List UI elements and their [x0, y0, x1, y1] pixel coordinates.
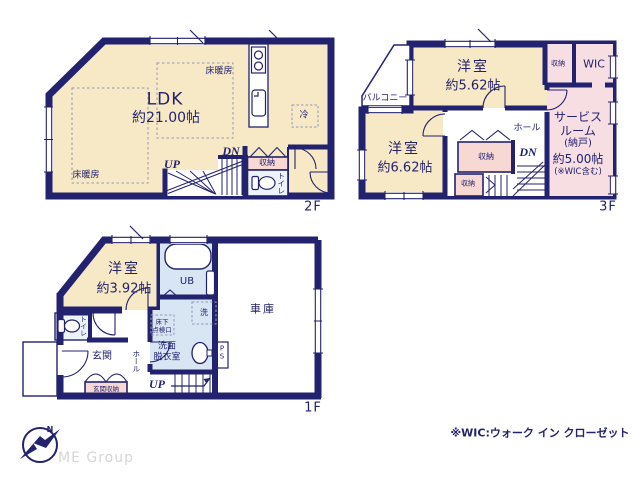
service-room-label: ルーム [560, 125, 596, 137]
floor-heating-label: 床暖房 [72, 172, 99, 181]
stairs-down-label: DN [222, 145, 239, 157]
floor-label-2f: 2F [304, 201, 322, 214]
door-gap [122, 310, 148, 317]
toilet-label: トイレ [277, 172, 285, 195]
storage-label: 収納 [259, 159, 275, 167]
bath-counter-icon [207, 271, 215, 295]
room-label-ldk: LDK [147, 92, 184, 109]
washroom-label: 脱衣室 [153, 354, 180, 363]
toilet-tank-icon [58, 320, 65, 333]
fridge-label: 冷 [299, 112, 308, 121]
room-label-yoshitsu-562: 洋室 [457, 60, 489, 74]
room-size-yoshitsu-392: 約3.92帖 [97, 283, 152, 296]
toilet-bowl-icon [259, 177, 275, 190]
storage-label: 収納 [478, 153, 494, 161]
underfloor-hatch-label: 点検口 [152, 327, 172, 334]
compass-north-label: N [47, 426, 54, 434]
toilet-bowl-icon [65, 320, 80, 332]
washbasin-icon [192, 343, 208, 364]
garage-area [215, 240, 320, 398]
stairs-down-label: DN [519, 146, 536, 158]
unit-bath-label: UB [180, 277, 194, 287]
floor-plan-page: LDK 約21.00帖 床暖房 床暖房 冷 UP DN 収納 トイレ 2F バル… [0, 0, 640, 480]
storage-label: 収納 [461, 181, 475, 188]
kitchen-sink-icon [252, 90, 266, 116]
stairs-up-label: UP [164, 158, 180, 170]
floor-1f-geometry [23, 226, 323, 398]
room-label-yoshitsu-662: 洋室 [388, 142, 420, 156]
underfloor-hatch-label: 床下 [156, 319, 169, 326]
service-room-size: 約5.00帖 [553, 153, 604, 165]
balcony-label: バルコニー [363, 95, 408, 104]
garage-label: 車庫 [250, 304, 276, 315]
room-label-yoshitsu-392: 洋室 [108, 262, 140, 276]
logo-text: ME Group [58, 451, 134, 465]
wic-footnote: ※WIC:ウォーク イン クローゼット [450, 428, 629, 439]
service-room-sublabel: (納戸) [564, 139, 592, 149]
washer-label: 洗 [200, 309, 208, 317]
toilet-tank-icon [252, 177, 259, 190]
room-size-yoshitsu-662: 約6.62帖 [378, 162, 433, 175]
stairs-up-label: UP [149, 378, 165, 390]
pipe-space-label: S [220, 354, 224, 361]
wic-label: WIC [583, 59, 605, 70]
floor-label-3f: 3F [599, 201, 617, 214]
hall-label: ホール [132, 350, 140, 373]
compass-logo-icon [20, 428, 60, 462]
room-size-ldk: 約21.00帖 [132, 111, 200, 125]
f1-stair-treads [175, 372, 210, 395]
pipe-space-label: P [220, 346, 224, 353]
porch [23, 342, 57, 396]
floor-label-1f: 1F [304, 402, 322, 415]
toilet-label: トイレ [80, 316, 87, 337]
service-room-label: サービス [554, 111, 602, 123]
floor-heating-label: 床暖房 [205, 68, 232, 77]
stair-arrowhead [204, 378, 211, 384]
room-size-yoshitsu-562: 約5.62帖 [446, 80, 501, 93]
hall-label: ホール [513, 125, 540, 134]
entrance-label: 玄関 [92, 352, 112, 362]
service-room-note: (※WIC含む) [554, 168, 602, 177]
faucet-icon [207, 350, 212, 356]
entrance-storage-label: 玄関収納 [93, 386, 119, 393]
washroom-label: 洗面 [158, 343, 176, 352]
bathtub-icon [165, 244, 211, 269]
storage-label: 収納 [551, 61, 565, 68]
